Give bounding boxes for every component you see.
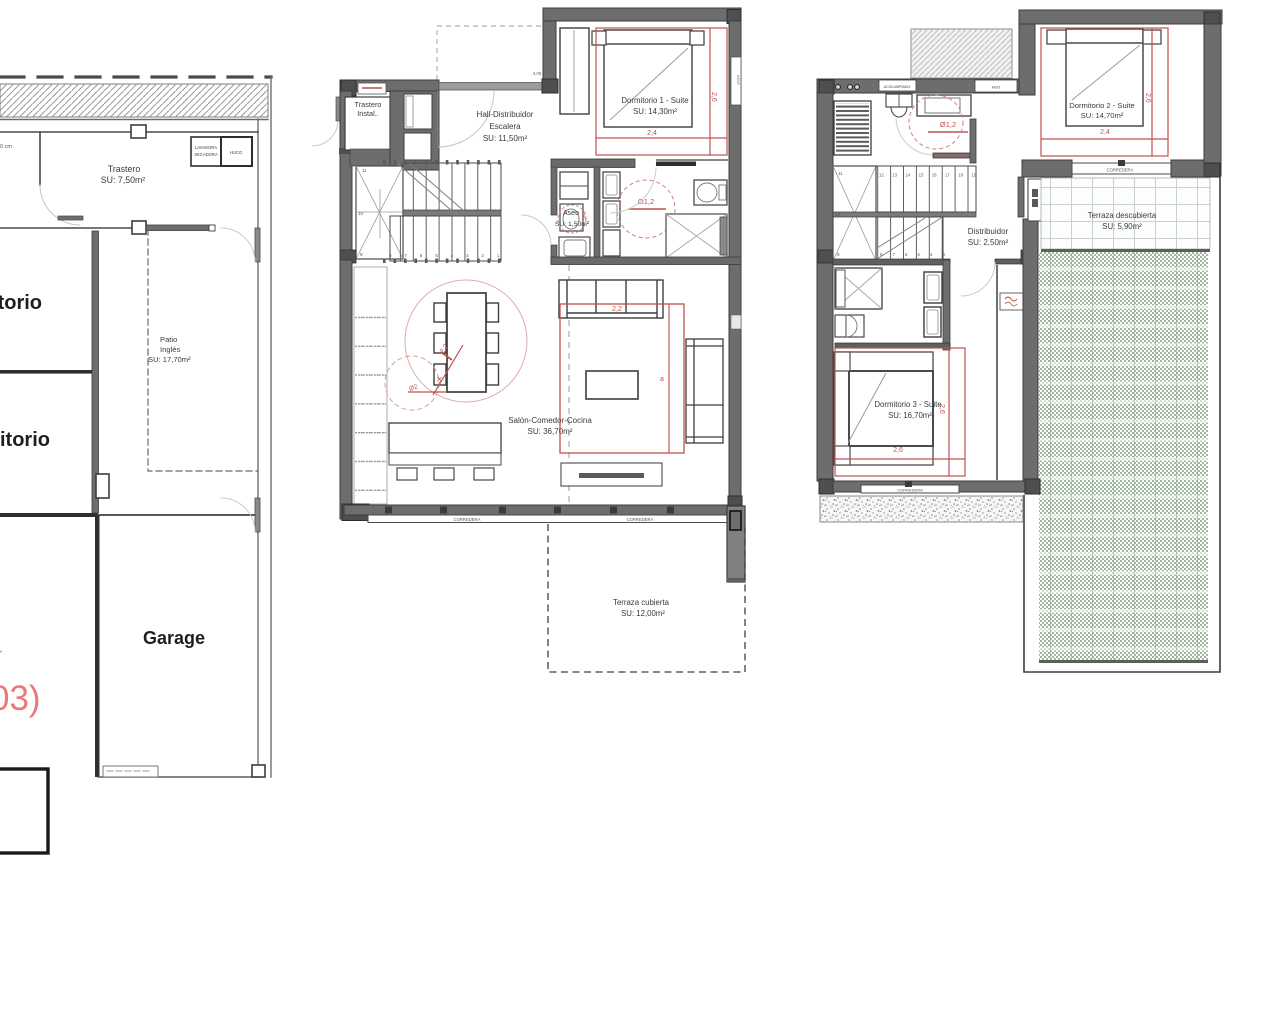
svg-text:17: 17 [945,173,950,178]
svg-text:SU: 11,50m²: SU: 11,50m² [483,134,528,143]
svg-text:Ø1,2: Ø1,2 [940,120,956,129]
svg-text:11: 11 [838,171,843,176]
svg-text:Patio: Patio [160,335,177,344]
svg-text:10: 10 [358,211,364,216]
svg-text:2,6: 2,6 [893,447,903,454]
svg-text:2,4: 2,4 [1100,129,1110,136]
svg-text:Garage: Garage [143,628,205,648]
svg-text:Escalera: Escalera [489,122,521,131]
svg-text:SU: 1,50m²: SU: 1,50m² [555,221,590,228]
svg-text:14: 14 [905,173,910,178]
svg-text:Terraza descubierta: Terraza descubierta [1088,211,1157,220]
svg-text:Hall-Distribuidor: Hall-Distribuidor [477,110,534,119]
svg-text:Salón-Comedor-Cocina: Salón-Comedor-Cocina [508,416,592,425]
svg-text:CORREDERA: CORREDERA [1107,168,1134,173]
svg-text:0 cm: 0 cm [0,144,12,150]
svg-text:13: 13 [892,173,897,178]
svg-text:HUCO: HUCO [230,150,243,155]
svg-text:CORREDERA: CORREDERA [897,488,923,493]
svg-text:Trastero: Trastero [108,164,141,174]
svg-text:a: a [660,376,664,383]
svg-text:Dormitorio 1 - Suite: Dormitorio 1 - Suite [621,96,688,105]
svg-text:LAVADORA: LAVADORA [195,145,217,150]
svg-text:2,2: 2,2 [612,306,622,313]
svg-text:4,05: 4,05 [533,71,542,76]
svg-text:Aseo: Aseo [563,210,579,217]
svg-text:10: 10 [835,212,841,217]
svg-text:03): 03) [0,679,41,718]
svg-text:HUO: HUO [992,86,1000,90]
svg-text:SU: 5,90m²: SU: 5,90m² [1102,222,1142,231]
svg-text:ACOLUMPIADO: ACOLUMPIADO [884,85,911,89]
svg-text:SU: 36,70m²: SU: 36,70m² [528,427,573,436]
svg-text:2,6: 2,6 [710,92,717,102]
svg-text:SU: 17,70m²: SU: 17,70m² [148,355,191,364]
svg-text:SU: 7,50m²: SU: 7,50m² [101,175,146,185]
svg-text:SU: 12,00m²: SU: 12,00m² [621,609,665,618]
svg-text:CORREDERA: CORREDERA [627,517,654,522]
svg-text:╳: ╳ [581,212,586,220]
svg-text:CORREDERA: CORREDERA [454,517,481,522]
svg-text:torio: torio [0,292,42,314]
svg-text:✕: ✕ [436,375,443,384]
svg-text:3: 3 [943,252,946,257]
svg-text:2,6: 2,6 [1144,93,1151,103]
svg-text:VENT: VENT [736,75,740,86]
svg-text:Dormitorio 3 - Suite: Dormitorio 3 - Suite [874,400,941,409]
svg-text:SECADORA: SECADORA [194,152,218,157]
svg-text:SU: 14,30m²: SU: 14,30m² [633,107,677,116]
svg-text:SU: 16,70m²: SU: 16,70m² [888,411,932,420]
svg-text:18: 18 [958,173,963,178]
svg-text:Distribuidor: Distribuidor [968,227,1009,236]
svg-text:16: 16 [932,173,937,178]
svg-text:nitorio: nitorio [0,429,50,451]
svg-text:SU: 2,50m²: SU: 2,50m² [968,238,1009,247]
svg-text:°: ° [0,651,3,657]
svg-text:Terraza cubierta: Terraza cubierta [613,598,670,607]
svg-text:11: 11 [362,168,367,173]
svg-text:19: 19 [971,173,976,178]
svg-text:SU: 14,70m²: SU: 14,70m² [1081,111,1124,120]
svg-text:15: 15 [919,173,924,178]
svg-text:Dormitorio 2 - Suite: Dormitorio 2 - Suite [1069,101,1134,110]
svg-text:Inglés: Inglés [160,345,180,354]
svg-text:Instal..: Instal.. [357,109,379,118]
svg-text:12: 12 [879,173,884,178]
svg-text:2,4: 2,4 [647,130,657,137]
svg-text:Trastero: Trastero [355,100,382,109]
